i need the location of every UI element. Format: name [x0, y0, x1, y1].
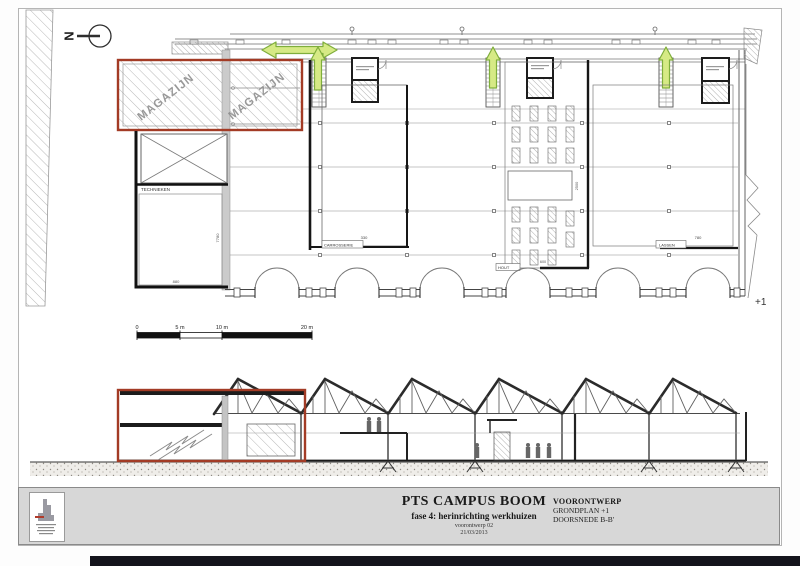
- north-label: N: [61, 31, 76, 40]
- north-arrow: N: [61, 25, 111, 47]
- existing-wall-hatch: [26, 10, 53, 306]
- bay-lines: [230, 122, 738, 257]
- drawing-canvas: N: [0, 0, 800, 566]
- lassen-room: 780 LASSEN: [593, 85, 738, 248]
- hout-table-dim: 2500: [575, 182, 579, 190]
- plan-top-hatched-strip: [172, 42, 228, 54]
- section-interior: [305, 412, 746, 461]
- scale-0: 0: [135, 325, 138, 331]
- scale-5m: 5 m: [175, 325, 185, 331]
- hout-label: HOUT: [498, 265, 510, 270]
- right-site-marks: +1: [744, 28, 767, 308]
- horizontal-double-arrow: [262, 42, 337, 58]
- sheet-name-2: DOORSNEDE B-B': [553, 515, 713, 524]
- lassen-dim: 780: [695, 235, 702, 240]
- scale-10m: 10 m: [216, 325, 229, 331]
- section-columns: [301, 414, 736, 460]
- carrosserie-label: CARROSSERIE: [324, 243, 353, 248]
- hout-bay-dim: 600: [540, 260, 546, 264]
- technieken-label: TECHNIEKEN: [141, 187, 170, 192]
- scale-20m: 20 m: [301, 325, 314, 331]
- firm-logo: [29, 492, 65, 542]
- scale-bar: 0 5 m 10 m 20 m: [135, 325, 313, 340]
- level-marker: +1: [755, 297, 767, 308]
- section-drawing: [30, 379, 768, 476]
- plan-facade-windows: [190, 40, 720, 44]
- technieken-room: TECHNIEKEN 7780 880: [136, 131, 228, 287]
- meta-line-2: 21/03/2013: [309, 530, 639, 537]
- phase-label: VOORONTWERP: [553, 497, 713, 506]
- lassen-label: LASSEN: [659, 243, 675, 248]
- sheet-name-1: GRONDPLAN +1: [553, 506, 713, 515]
- floor-plan: MAGAZIJN MAGAZIJN TECHNIEKEN 7780 880: [118, 27, 767, 308]
- annex-width-dim: 880: [173, 279, 180, 284]
- top-unit-rooms: [352, 58, 737, 103]
- magazijn-zone: MAGAZIJN MAGAZIJN: [118, 60, 302, 130]
- architectural-drawing-sheet: N: [0, 0, 800, 566]
- title-block: PTS CAMPUS BOOM fase 4: herinrichting we…: [18, 487, 780, 545]
- people-silhouettes: [367, 417, 551, 458]
- sawtooth-trusses: [214, 379, 736, 414]
- bottom-bar: [90, 556, 800, 566]
- annex-depth-dim: 7780: [215, 233, 220, 243]
- bottom-facade: [225, 268, 745, 298]
- carrosserie-dim: 330: [361, 235, 368, 240]
- meta-line-1: voorontwerp 02: [309, 523, 639, 530]
